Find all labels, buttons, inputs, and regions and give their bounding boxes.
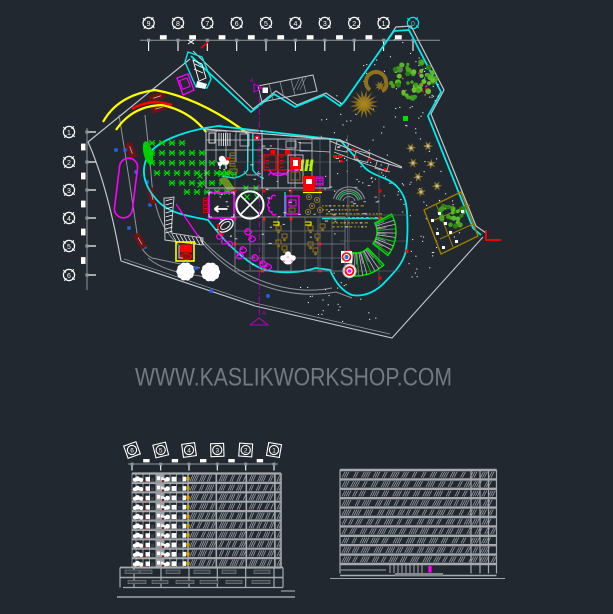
svg-text:2: 2 [67,160,71,167]
svg-text:3: 3 [215,448,219,455]
svg-text:4: 4 [67,216,71,223]
svg-text:1: 1 [67,130,71,137]
svg-text:8: 8 [176,21,180,28]
svg-text:A: A [262,311,266,317]
svg-text:2: 2 [352,21,356,28]
svg-text:2: 2 [244,448,248,455]
svg-text:6: 6 [67,273,71,280]
svg-text:3: 3 [323,21,327,28]
svg-text:5: 5 [67,244,71,251]
svg-text:4: 4 [187,448,191,455]
svg-text:1: 1 [382,21,386,28]
svg-text:WWW.KASLIKWORKSHOP.COM: WWW.KASLIKWORKSHOP.COM [135,364,452,392]
svg-text:4: 4 [293,21,297,28]
svg-text:9: 9 [147,21,151,28]
svg-text:6: 6 [130,448,134,455]
svg-text:5: 5 [159,448,163,455]
svg-text:7: 7 [205,21,209,28]
svg-text:5: 5 [264,21,268,28]
svg-text:6: 6 [235,21,239,28]
svg-text:3: 3 [67,188,71,195]
svg-text:1: 1 [272,448,276,455]
